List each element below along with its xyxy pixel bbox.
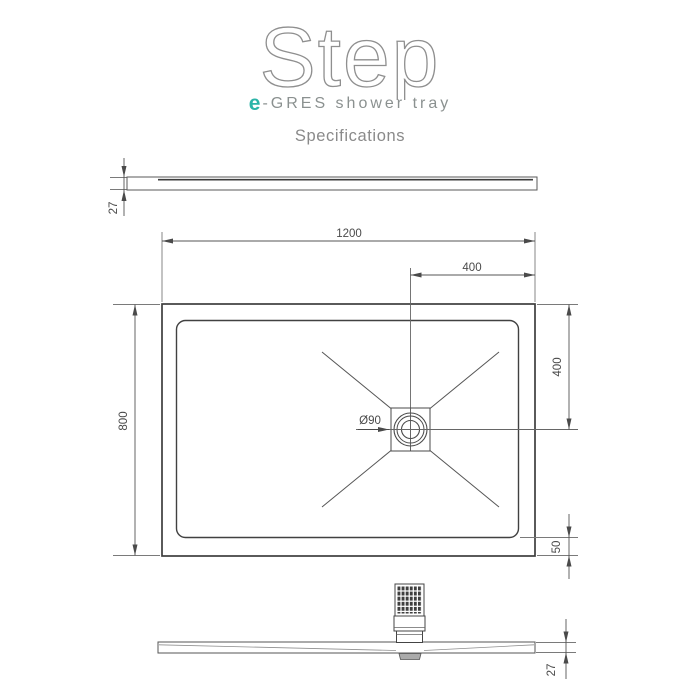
shower-tray-spec-sheet: Step e-GRES shower tray Specifications: [0, 0, 700, 700]
dim-label-drain-diameter: Ø90: [359, 415, 381, 427]
drain-flange: [397, 631, 423, 643]
tray-outer-edge: [162, 304, 535, 556]
dim-label-50: 50: [551, 541, 563, 554]
plan-view: Ø90 1200 400 800: [113, 228, 578, 579]
dim-label-800: 800: [118, 411, 130, 430]
dim-drain-from-right-400: 400: [411, 262, 536, 275]
drain-outlet: [399, 654, 421, 660]
side-profile-bottom: 27: [158, 584, 576, 679]
dim-label-1200: 1200: [336, 228, 362, 240]
dim-thickness-bottom: 27: [536, 619, 576, 679]
dim-drain-from-top-400: 400: [537, 305, 578, 430]
drain-body: [394, 616, 425, 631]
side-profile-top: 27: [108, 158, 537, 216]
drain-grate-grid: [398, 587, 423, 614]
dim-label-27-bottom: 27: [546, 664, 558, 677]
dim-depth-800: 800: [113, 305, 160, 556]
dim-label-400-horizontal: 400: [462, 262, 481, 274]
dim-label-27-top: 27: [108, 202, 120, 215]
dim-thickness-top: 27: [108, 158, 124, 216]
dim-label-400-vertical: 400: [552, 357, 564, 376]
technical-drawing: 27: [0, 0, 700, 700]
